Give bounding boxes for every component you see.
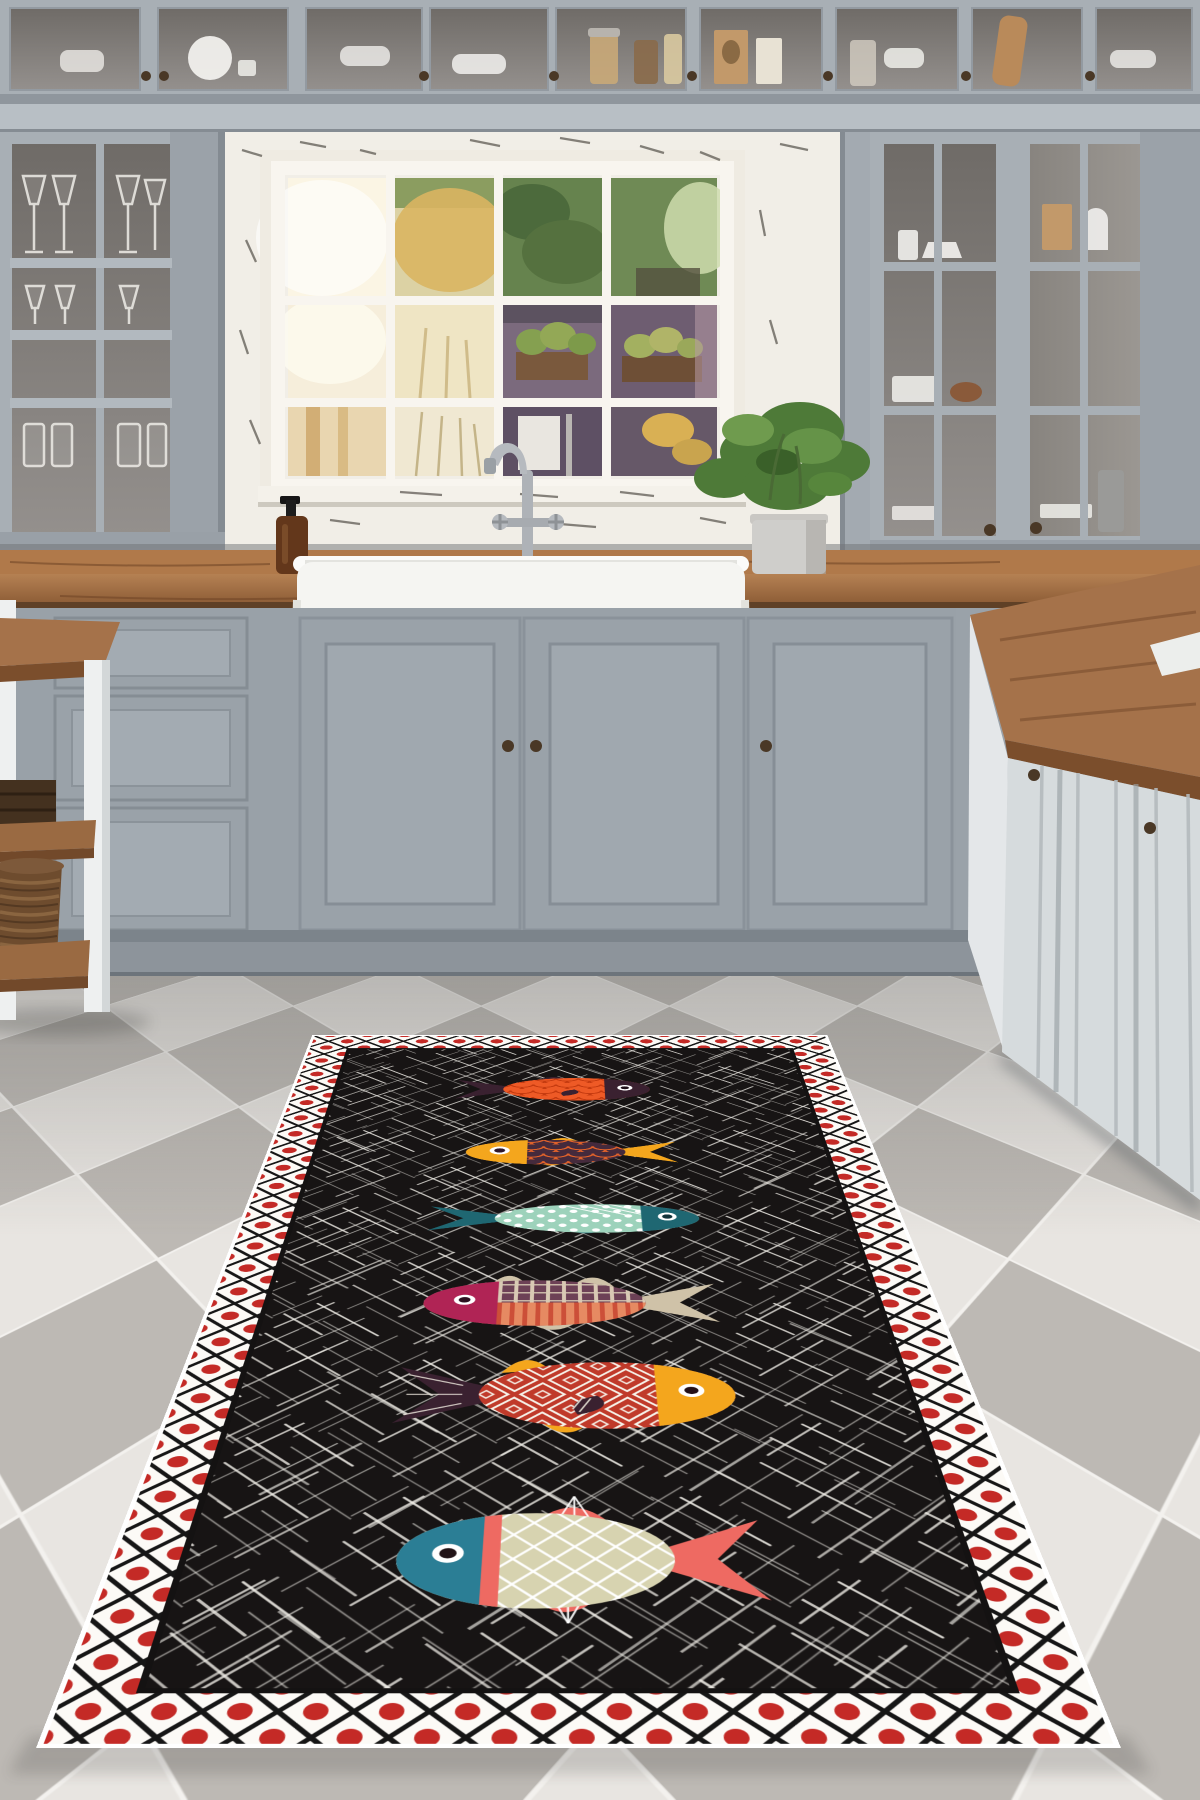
kitchen-island [968, 565, 1200, 1214]
kitchen-photo [0, 0, 1200, 1800]
wooden-box [0, 780, 56, 826]
side-table [0, 600, 150, 1036]
table-top [0, 618, 120, 666]
rug-shadow [8, 1736, 1152, 1774]
table-shelf [0, 820, 96, 852]
foreground [0, 0, 1200, 1800]
table-shelf-low [0, 940, 90, 980]
